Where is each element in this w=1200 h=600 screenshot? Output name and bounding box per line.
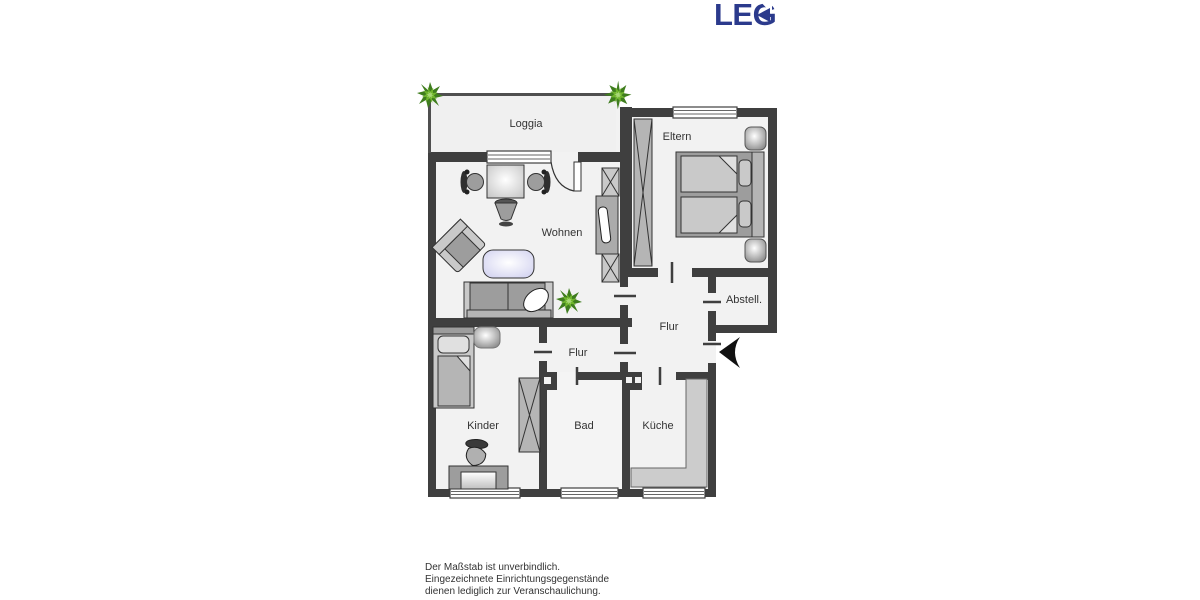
label-kinder: Kinder xyxy=(467,420,499,432)
window-bad xyxy=(561,488,618,498)
label-loggia: Loggia xyxy=(509,118,543,130)
desk xyxy=(449,466,508,489)
label-wohnen: Wohnen xyxy=(542,227,583,239)
label-bad: Bad xyxy=(574,420,594,432)
bedside-ball xyxy=(474,327,500,348)
sofa xyxy=(464,282,553,318)
floorplan-canvas: Loggia Wohnen Eltern Abstell. Flur Flur … xyxy=(0,0,1200,600)
disclaimer-line-2: Eingezeichnete Einrichtungsgegenstände xyxy=(425,574,609,585)
window-kueche xyxy=(643,488,705,498)
nightstand-bottom xyxy=(745,239,766,262)
entrance-arrow-icon xyxy=(719,337,740,368)
single-bed xyxy=(433,327,474,408)
nightstand-top xyxy=(745,127,766,150)
label-kueche: Küche xyxy=(642,420,673,432)
label-abstell: Abstell. xyxy=(726,294,762,306)
label-eltern: Eltern xyxy=(663,131,692,143)
label-flur-upper: Flur xyxy=(660,321,679,333)
floorplan-page: Loggia Wohnen Eltern Abstell. Flur Flur … xyxy=(0,0,1200,600)
window-wohnen-loggia xyxy=(487,151,551,163)
coffee-table xyxy=(483,250,534,278)
disclaimer-line-1: Der Maßstab ist unverbindlich. xyxy=(425,562,560,573)
label-flur-lower: Flur xyxy=(569,347,588,359)
disclaimer-line-3: dienen lediglich zur Veranschaulichung. xyxy=(425,586,601,597)
leg-logo: LEG xyxy=(714,0,776,32)
window-eltern xyxy=(673,107,737,118)
double-bed xyxy=(676,152,764,237)
wardrobe-eltern xyxy=(634,119,652,266)
wardrobe-kinder xyxy=(519,378,540,452)
disclaimer-block: Der Maßstab ist unverbindlich. Eingezeic… xyxy=(425,562,609,597)
dining-table xyxy=(487,165,524,198)
